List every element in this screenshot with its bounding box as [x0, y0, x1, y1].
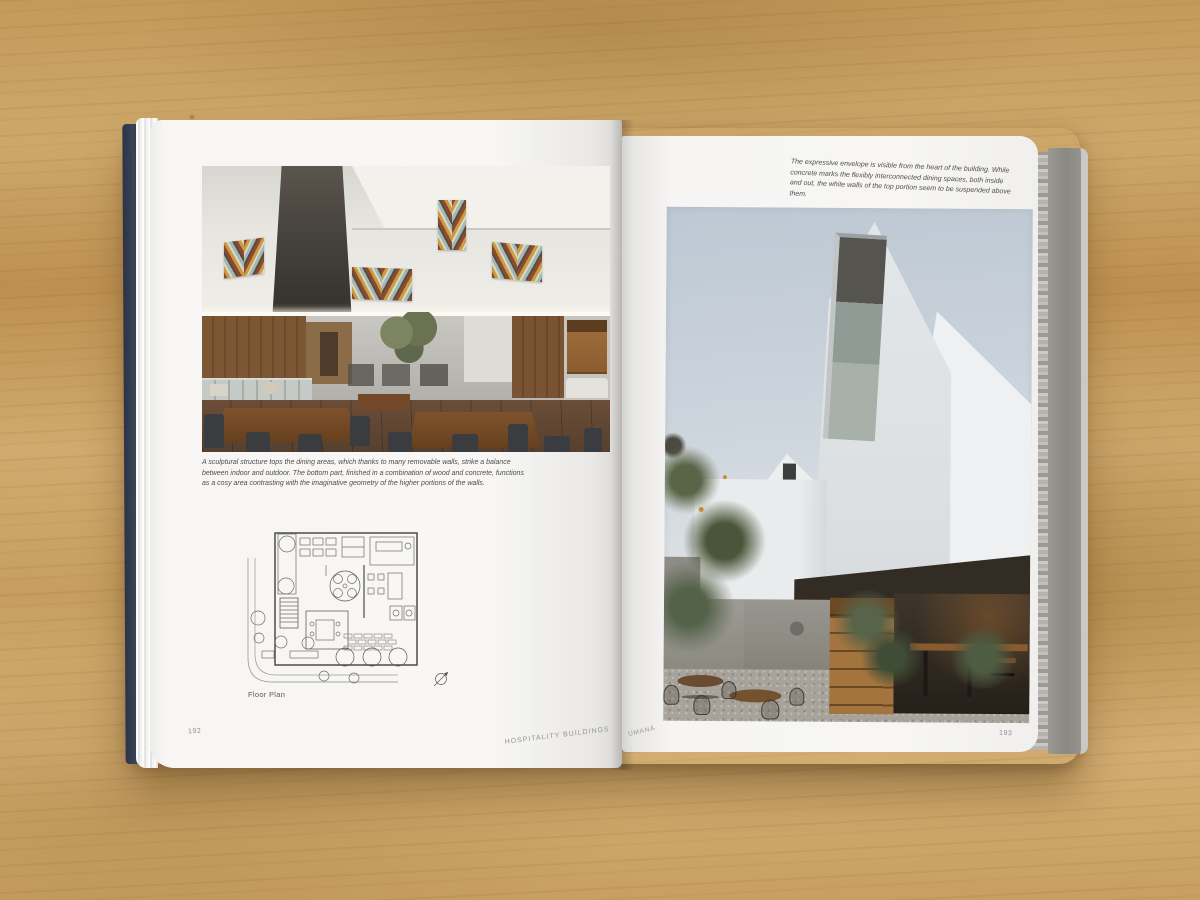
dining-chair: [246, 432, 270, 452]
wire-patio-chair: [663, 685, 679, 705]
dining-chair: [508, 424, 528, 452]
round-patio-table: [677, 675, 723, 687]
chevron-artwork-center: [352, 267, 412, 301]
dining-chair: [350, 416, 370, 446]
book-spread: A sculptural structure tops the dining a…: [118, 112, 1100, 780]
dining-chair: [544, 436, 570, 452]
right-page-number: 193: [998, 730, 1012, 737]
courtyard-tree: [378, 312, 440, 364]
left-page: A sculptural structure tops the dining a…: [150, 120, 622, 768]
dining-chair: [298, 434, 322, 452]
exterior-photo: [663, 207, 1033, 724]
dining-chair: [204, 414, 224, 448]
dining-chair: [452, 434, 478, 452]
back-cover-edge: [1048, 148, 1088, 754]
dining-table: [358, 394, 410, 410]
courtyard-opening: [306, 316, 512, 400]
chevron-artwork-right: [492, 242, 542, 282]
right-photo-caption: The expressive envelope is visible from …: [789, 157, 1015, 208]
wire-patio-chair: [721, 681, 736, 699]
left-page-number: 192: [188, 728, 202, 736]
far-doorway: [320, 332, 338, 376]
section-title: HOSPITALITY BUILDINGS: [505, 726, 611, 746]
white-sofa: [566, 378, 608, 398]
wire-patio-chair: [761, 699, 779, 719]
dining-room-lower-zone: [202, 316, 610, 452]
floor-plan-label: Floor Plan: [248, 690, 285, 699]
outdoor-tables-silhouette: [348, 364, 466, 386]
pillow: [262, 382, 278, 394]
wire-patio-chair: [789, 688, 804, 706]
right-bay: [564, 316, 610, 402]
project-name-footer: UMANÁ: [628, 725, 656, 738]
floor-plan-drawing: [238, 518, 474, 698]
cabinet-plant: [859, 628, 923, 686]
wood-panel-wall-left: [202, 316, 306, 386]
bar-leg: [923, 651, 927, 697]
ceiling-edge-line: [352, 228, 610, 230]
left-photo-caption: A sculptural structure tops the dining a…: [202, 458, 524, 490]
wood-panel-wall-right: [512, 316, 564, 398]
chevron-artwork-upper-right: [438, 200, 466, 250]
round-wall-opening: [790, 622, 804, 636]
wood-cabinet: [567, 320, 607, 374]
orange-flower: [699, 507, 704, 512]
photo-of-open-book-on-plywood-table: { "book": { "left_page": { "photo_captio…: [0, 0, 1200, 900]
dining-chair: [584, 428, 602, 452]
dining-table: [216, 408, 356, 442]
right-page: The expressive envelope is visible from …: [622, 136, 1038, 752]
wire-patio-chair: [693, 695, 710, 715]
interior-photo: [202, 166, 610, 452]
ceiling-recess: [352, 166, 610, 230]
far-white-wall: [464, 316, 512, 382]
pillow: [210, 384, 228, 396]
orange-flower: [723, 475, 727, 479]
concrete-chimney-volume: [272, 166, 352, 322]
dining-chair: [388, 432, 412, 452]
chevron-artwork-left: [224, 238, 264, 279]
interior-plant: [949, 627, 1015, 689]
